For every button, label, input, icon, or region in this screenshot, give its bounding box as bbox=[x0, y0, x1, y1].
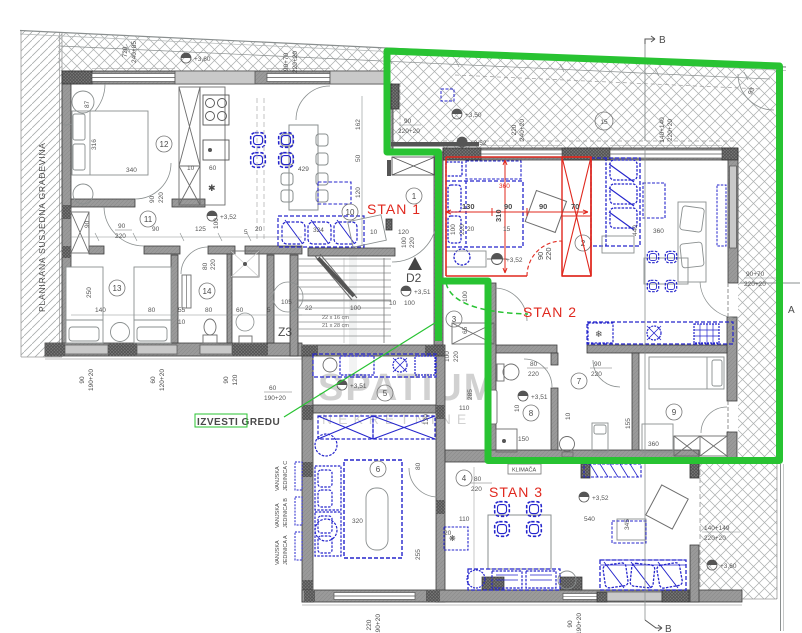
svg-text:60: 60 bbox=[269, 385, 277, 392]
svg-text:90: 90 bbox=[504, 202, 512, 211]
svg-text:60: 60 bbox=[236, 307, 244, 314]
svg-text:140+149: 140+149 bbox=[704, 525, 730, 532]
svg-text:345: 345 bbox=[624, 519, 631, 530]
svg-text:STAN 1: STAN 1 bbox=[367, 201, 421, 217]
svg-text:220: 220 bbox=[210, 259, 217, 270]
svg-text:Z3: Z3 bbox=[278, 325, 292, 339]
svg-text:100: 100 bbox=[401, 237, 408, 248]
svg-text:B: B bbox=[659, 35, 666, 46]
svg-text:❄: ❄ bbox=[595, 329, 603, 339]
svg-text:JEDINICA C: JEDINICA C bbox=[283, 461, 289, 491]
svg-text:50: 50 bbox=[355, 154, 362, 162]
svg-text:60: 60 bbox=[150, 376, 157, 384]
svg-text:10: 10 bbox=[514, 404, 521, 412]
svg-text:130: 130 bbox=[423, 414, 430, 425]
svg-text:14: 14 bbox=[203, 287, 212, 296]
svg-text:+3,51: +3,51 bbox=[350, 383, 367, 390]
svg-text:80: 80 bbox=[148, 307, 156, 314]
svg-text:5: 5 bbox=[244, 229, 248, 236]
svg-text:90: 90 bbox=[567, 620, 574, 628]
svg-text:3: 3 bbox=[452, 315, 457, 324]
svg-text:220+20: 220+20 bbox=[704, 535, 726, 542]
svg-text:250: 250 bbox=[86, 287, 93, 298]
svg-text:80: 80 bbox=[530, 361, 538, 368]
svg-text:KLIMAČA: KLIMAČA bbox=[512, 467, 536, 474]
svg-text:5: 5 bbox=[383, 389, 388, 398]
svg-text:10: 10 bbox=[178, 319, 186, 326]
svg-text:220: 220 bbox=[528, 371, 539, 378]
svg-text:+3,52: +3,52 bbox=[506, 257, 523, 264]
svg-text:360: 360 bbox=[499, 183, 510, 190]
svg-text:VANJSKA: VANJSKA bbox=[275, 466, 281, 491]
svg-text:6: 6 bbox=[376, 465, 381, 474]
svg-text:22 x 16 cm: 22 x 16 cm bbox=[322, 315, 349, 321]
svg-text:11: 11 bbox=[144, 215, 153, 224]
svg-text:120+20: 120+20 bbox=[159, 369, 166, 391]
svg-text:80: 80 bbox=[415, 462, 422, 470]
svg-text:360: 360 bbox=[653, 228, 664, 235]
svg-text:190+20: 190+20 bbox=[375, 614, 382, 633]
svg-text:10: 10 bbox=[370, 229, 378, 236]
svg-text:90: 90 bbox=[594, 361, 602, 368]
svg-text:21 x 28 cm: 21 x 28 cm bbox=[322, 323, 349, 329]
svg-text:JEDINICA A: JEDINICA A bbox=[283, 535, 289, 565]
svg-text:+3,51: +3,51 bbox=[531, 394, 548, 401]
svg-text:220: 220 bbox=[409, 237, 416, 248]
svg-text:120: 120 bbox=[232, 374, 239, 385]
svg-text:105: 105 bbox=[281, 299, 292, 306]
svg-text:VANJSKA: VANJSKA bbox=[275, 540, 281, 565]
svg-text:125: 125 bbox=[195, 226, 206, 233]
svg-text:255: 255 bbox=[415, 549, 422, 560]
svg-text:220: 220 bbox=[591, 371, 602, 378]
svg-text:90: 90 bbox=[149, 195, 156, 203]
svg-text:B: B bbox=[665, 624, 672, 633]
svg-text:90: 90 bbox=[152, 226, 160, 233]
svg-text:10: 10 bbox=[389, 300, 397, 307]
svg-text:87: 87 bbox=[84, 100, 91, 108]
svg-text:220: 220 bbox=[115, 233, 126, 240]
svg-text:90: 90 bbox=[223, 376, 230, 384]
svg-text:429: 429 bbox=[298, 166, 309, 173]
svg-text:316: 316 bbox=[91, 139, 98, 150]
svg-text:+3,60: +3,60 bbox=[720, 563, 737, 570]
svg-text:110: 110 bbox=[459, 516, 470, 523]
svg-text:720: 720 bbox=[122, 46, 129, 57]
svg-text:+3,52: +3,52 bbox=[220, 214, 237, 221]
svg-text:100: 100 bbox=[404, 300, 415, 307]
svg-text:220: 220 bbox=[453, 351, 460, 362]
svg-text:240+20: 240+20 bbox=[519, 119, 526, 141]
svg-text:90: 90 bbox=[404, 118, 412, 125]
svg-text:190+20: 190+20 bbox=[576, 613, 583, 633]
svg-text:220: 220 bbox=[471, 486, 482, 493]
svg-text:+3,52: +3,52 bbox=[470, 140, 487, 147]
svg-text:100: 100 bbox=[213, 218, 220, 229]
svg-text:D2: D2 bbox=[406, 271, 422, 285]
svg-text:IZVESTI GREDU: IZVESTI GREDU bbox=[197, 417, 280, 428]
svg-text:12: 12 bbox=[160, 140, 169, 149]
svg-text:90: 90 bbox=[539, 202, 547, 211]
svg-text:360: 360 bbox=[648, 441, 659, 448]
svg-text:80: 80 bbox=[474, 476, 482, 483]
svg-text:22: 22 bbox=[305, 305, 313, 312]
svg-text:190+20: 190+20 bbox=[88, 369, 95, 391]
svg-text:340: 340 bbox=[126, 167, 137, 174]
svg-text:240+85: 240+85 bbox=[131, 41, 138, 63]
svg-text:220+20: 220+20 bbox=[398, 128, 420, 135]
svg-text:540: 540 bbox=[584, 516, 595, 523]
svg-text:+3,52: +3,52 bbox=[592, 495, 609, 502]
svg-text:10: 10 bbox=[565, 412, 572, 420]
svg-text:100: 100 bbox=[462, 291, 469, 302]
svg-text:220: 220 bbox=[511, 124, 518, 135]
svg-text:8: 8 bbox=[529, 409, 534, 418]
svg-text:90: 90 bbox=[84, 220, 91, 228]
svg-text:120: 120 bbox=[398, 229, 409, 236]
svg-text:+3,51: +3,51 bbox=[414, 289, 431, 296]
svg-text:220: 220 bbox=[158, 192, 165, 203]
svg-text:100: 100 bbox=[350, 305, 361, 312]
svg-text:✱: ✱ bbox=[208, 183, 216, 193]
svg-text:90: 90 bbox=[118, 223, 126, 230]
svg-text:15: 15 bbox=[503, 226, 511, 233]
svg-text:220+20: 220+20 bbox=[667, 119, 674, 141]
svg-text:20: 20 bbox=[255, 226, 263, 233]
svg-text:70: 70 bbox=[571, 202, 579, 211]
svg-text:90+70: 90+70 bbox=[283, 52, 290, 71]
svg-text:60: 60 bbox=[209, 165, 217, 172]
svg-text:VANJSKA: VANJSKA bbox=[275, 503, 281, 528]
svg-text:7: 7 bbox=[577, 377, 582, 386]
svg-text:STAN 3: STAN 3 bbox=[489, 484, 543, 500]
svg-text:220+20: 220+20 bbox=[744, 281, 766, 288]
svg-text:100: 100 bbox=[450, 224, 457, 235]
svg-text:310: 310 bbox=[494, 209, 503, 222]
svg-text:65: 65 bbox=[462, 326, 469, 334]
svg-text:150: 150 bbox=[518, 436, 529, 443]
svg-text:STAN 2: STAN 2 bbox=[523, 304, 577, 320]
svg-text:20: 20 bbox=[467, 226, 475, 233]
svg-text:13: 13 bbox=[113, 284, 122, 293]
svg-text:90+70: 90+70 bbox=[746, 271, 765, 278]
svg-text:440: 440 bbox=[632, 225, 639, 236]
svg-text:5: 5 bbox=[267, 307, 271, 314]
svg-text:80: 80 bbox=[205, 307, 213, 314]
svg-text:220: 220 bbox=[366, 619, 373, 630]
svg-text:JEDINICA B: JEDINICA B bbox=[283, 498, 289, 528]
svg-text:162: 162 bbox=[355, 119, 362, 130]
svg-text:80: 80 bbox=[202, 262, 209, 270]
svg-text:A: A bbox=[788, 305, 795, 316]
svg-text:220+20: 220+20 bbox=[292, 51, 299, 73]
svg-text:15: 15 bbox=[600, 119, 608, 126]
svg-text:4: 4 bbox=[462, 474, 467, 483]
svg-text:155: 155 bbox=[625, 418, 632, 429]
svg-text:55: 55 bbox=[178, 307, 186, 314]
svg-text:220: 220 bbox=[544, 247, 553, 260]
svg-text:1: 1 bbox=[412, 192, 417, 201]
svg-text:100: 100 bbox=[444, 351, 451, 362]
svg-text:SPATIUM: SPATIUM bbox=[318, 367, 497, 409]
svg-text:10: 10 bbox=[346, 208, 355, 217]
svg-text:320: 320 bbox=[352, 518, 363, 525]
svg-text:+3,50: +3,50 bbox=[465, 112, 482, 119]
svg-text:190+20: 190+20 bbox=[264, 395, 286, 402]
svg-text:140+140: 140+140 bbox=[659, 117, 666, 143]
svg-text:10: 10 bbox=[187, 165, 195, 172]
svg-text:+3,60: +3,60 bbox=[194, 56, 211, 63]
svg-text:140: 140 bbox=[95, 307, 106, 314]
svg-text:285: 285 bbox=[467, 389, 474, 400]
svg-text:220: 220 bbox=[459, 224, 466, 235]
svg-text:90: 90 bbox=[79, 376, 86, 384]
svg-text:120: 120 bbox=[355, 187, 362, 198]
svg-text:9: 9 bbox=[672, 408, 677, 417]
svg-text:110: 110 bbox=[459, 405, 470, 412]
svg-text:324: 324 bbox=[313, 227, 324, 234]
svg-text:PLANIRANA SUSJEDNA GRAĐEVINA: PLANIRANA SUSJEDNA GRAĐEVINA bbox=[37, 142, 47, 312]
svg-text:130: 130 bbox=[462, 202, 475, 211]
svg-text:20: 20 bbox=[444, 530, 452, 537]
